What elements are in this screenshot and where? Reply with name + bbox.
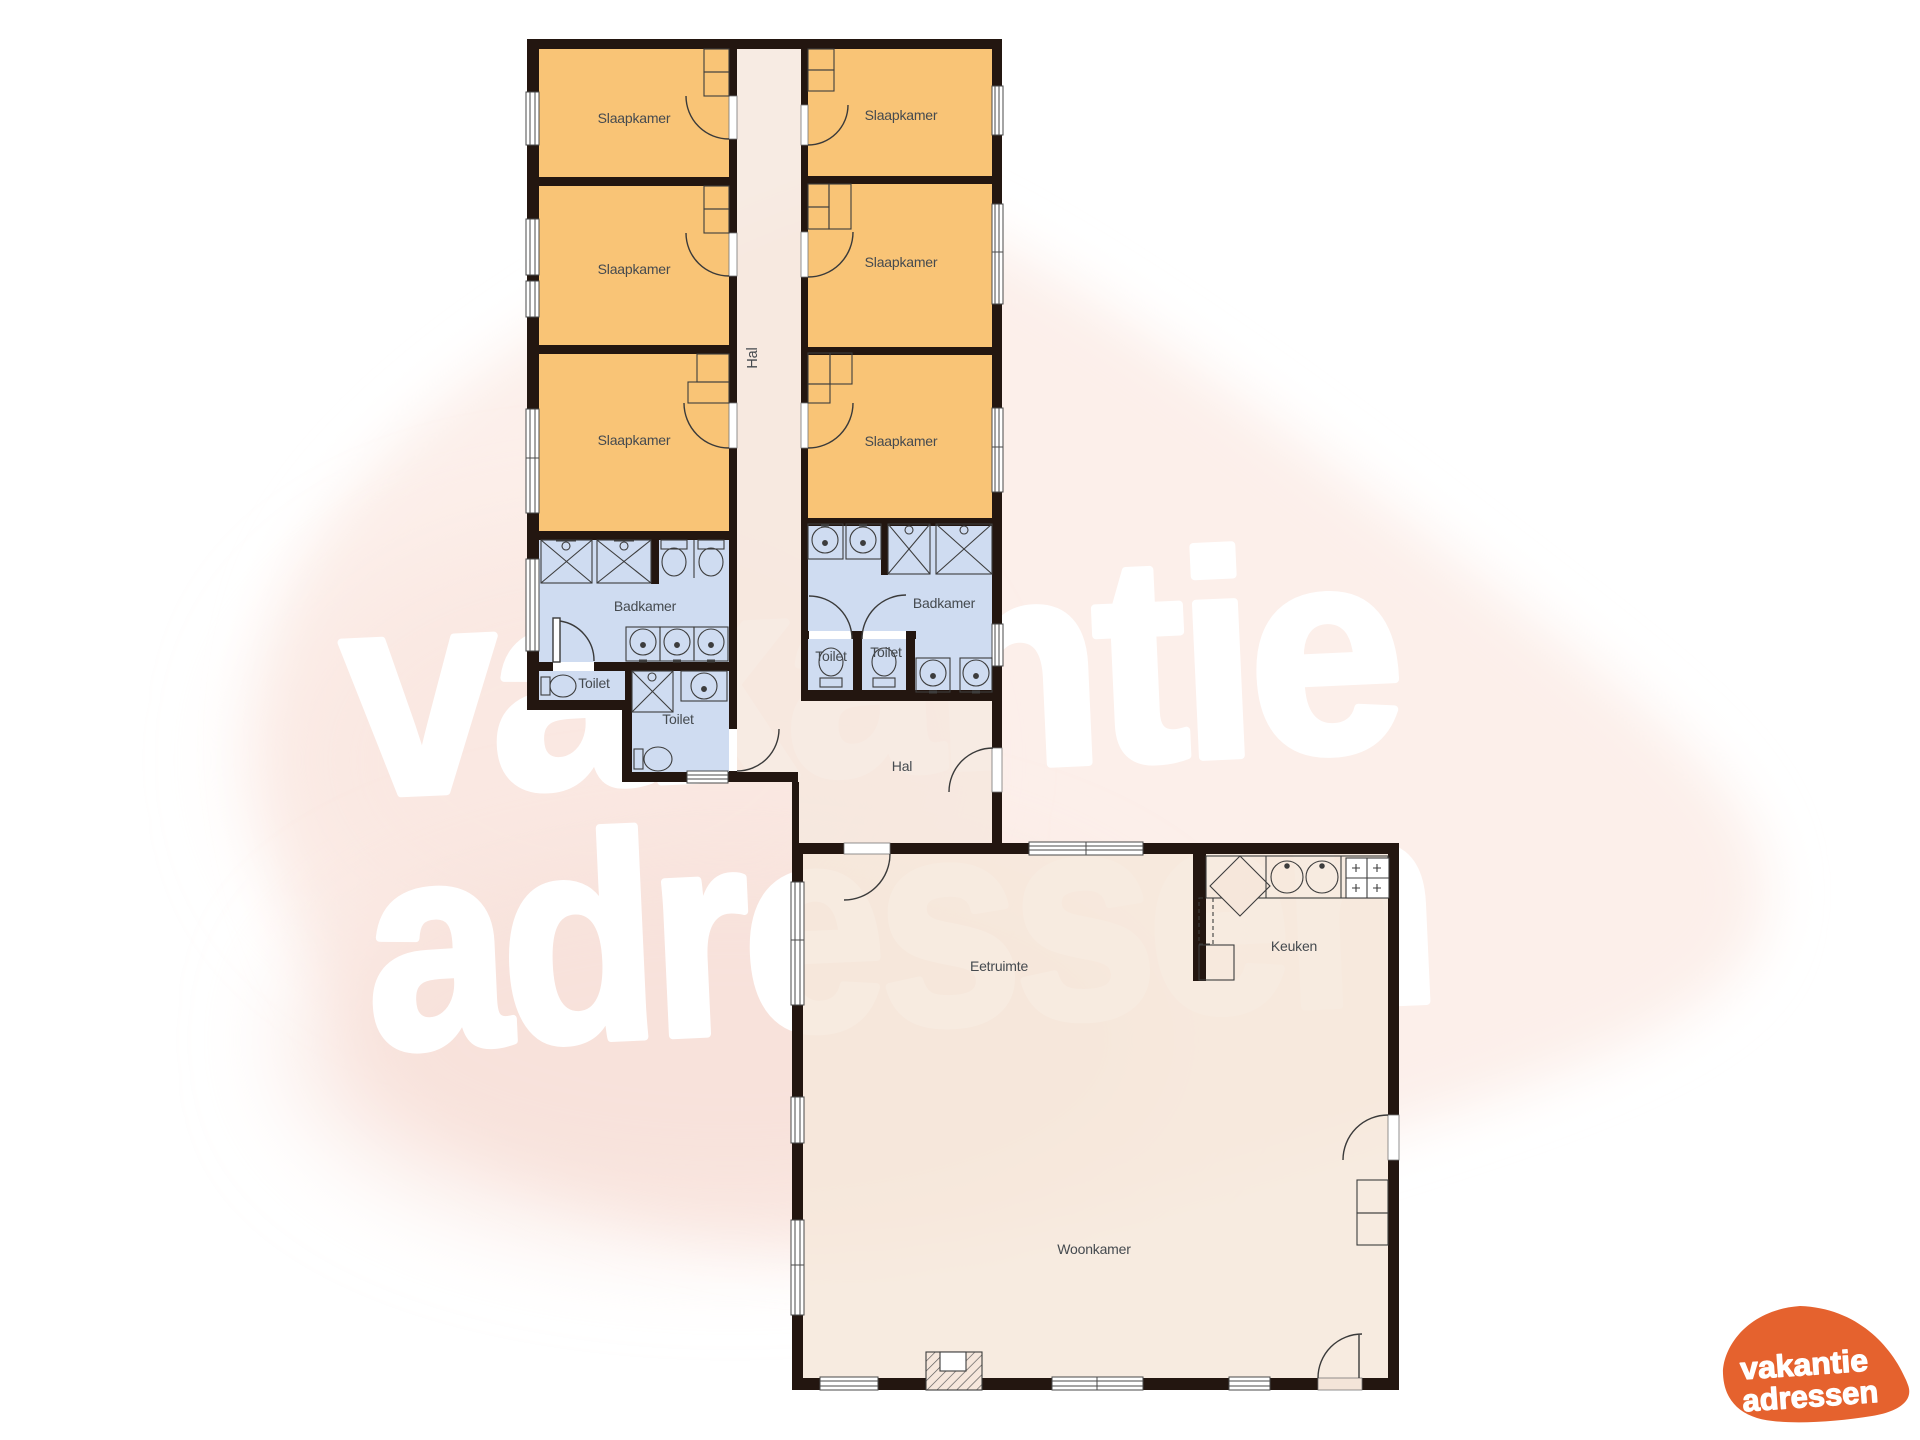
svg-text:Badkamer: Badkamer: [614, 598, 677, 614]
svg-text:Keuken: Keuken: [1271, 938, 1317, 954]
svg-text:Hal: Hal: [745, 347, 761, 368]
svg-text:Toilet: Toilet: [870, 644, 902, 660]
svg-text:Badkamer: Badkamer: [913, 595, 976, 611]
svg-text:Slaapkamer: Slaapkamer: [598, 110, 671, 126]
svg-text:Slaapkamer: Slaapkamer: [598, 432, 671, 448]
svg-text:Slaapkamer: Slaapkamer: [865, 254, 938, 270]
svg-text:Toilet: Toilet: [662, 711, 694, 727]
svg-text:Eetruimte: Eetruimte: [970, 958, 1029, 974]
svg-text:Woonkamer: Woonkamer: [1057, 1241, 1131, 1257]
svg-text:Slaapkamer: Slaapkamer: [865, 433, 938, 449]
svg-text:Toilet: Toilet: [815, 648, 847, 664]
svg-text:Hal: Hal: [892, 758, 912, 774]
svg-text:Toilet: Toilet: [578, 675, 610, 691]
svg-text:Slaapkamer: Slaapkamer: [865, 107, 938, 123]
svg-text:Slaapkamer: Slaapkamer: [598, 261, 671, 277]
